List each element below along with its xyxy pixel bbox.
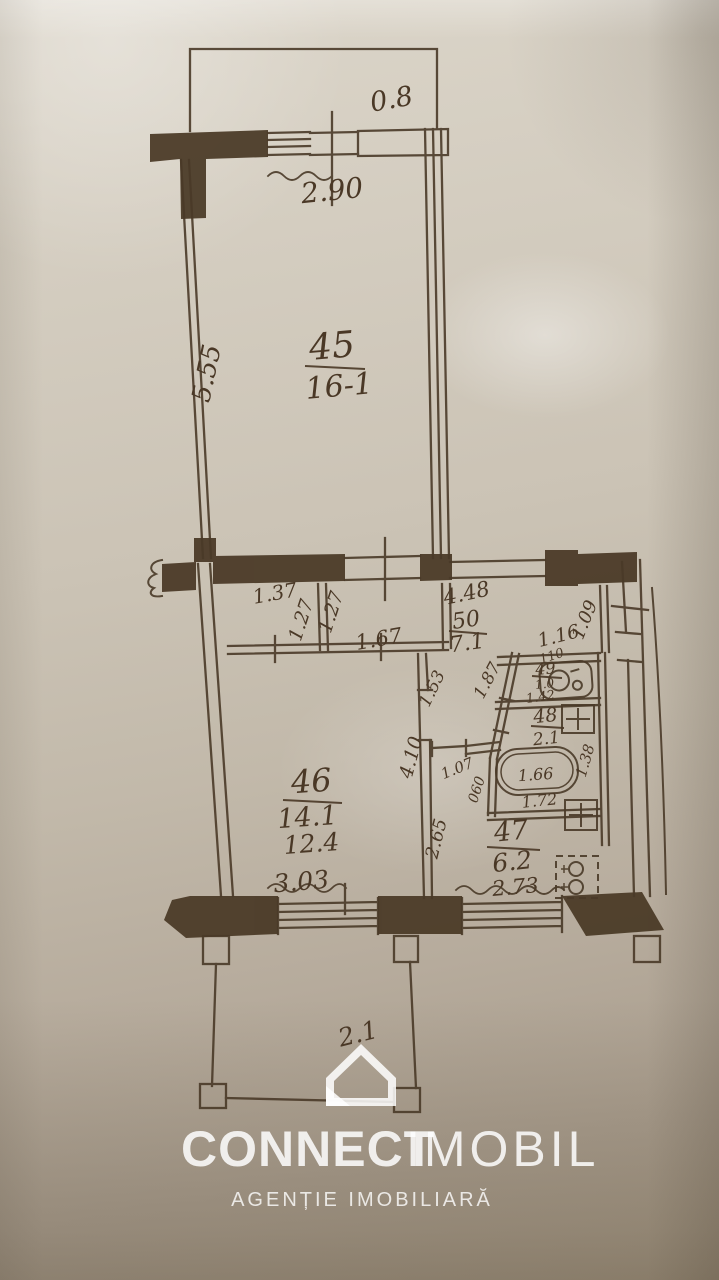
wall-bottom-mid — [378, 896, 462, 934]
balcony-post-tr — [394, 936, 418, 962]
room48-area: 2.1 — [531, 728, 561, 751]
balcony-post-br — [394, 1088, 420, 1112]
brand-light-text: IMOBIL — [406, 1121, 599, 1177]
dim-bath-length: 1.72 — [521, 789, 558, 812]
room46-number: 46 — [289, 761, 333, 802]
wall-left-cross-stub — [194, 538, 216, 562]
balcony-post-bl — [200, 1084, 226, 1108]
watermark: CONNECT IMOBIL AGENȚIE IMOBILIARĂ — [181, 1044, 599, 1211]
stove-icon — [556, 856, 598, 898]
wall-top-left-tee — [150, 130, 268, 219]
room48-number: 48 — [531, 704, 558, 729]
wall-room45-right — [425, 129, 449, 558]
floor-plan-photo: 0.8 2.90 45 16-1 5.55 1.37 1.27 1.27 1.6… — [0, 0, 719, 1280]
window-top-hatch — [268, 132, 310, 155]
room47-number: 47 — [491, 814, 530, 849]
wall-left-stub — [162, 562, 196, 592]
dim-door-width: 1.07 — [438, 754, 476, 783]
door-balcony-top — [310, 132, 358, 155]
dim-window-room46: 3.03 — [272, 865, 330, 899]
dim-balcony-bottom: 2.1 — [334, 1015, 381, 1053]
wall-main-right-inner — [622, 562, 634, 896]
dim-closet-depth-1: 1.27 — [284, 596, 318, 644]
dim-niche-depth: 1.53 — [415, 667, 450, 710]
balcony-bottom-outline — [212, 962, 416, 1102]
dim-room46-length: 4.10 — [395, 734, 427, 782]
balcony-post-tl — [203, 936, 229, 964]
dim-window-kitchen: 2.73 — [490, 873, 540, 901]
door-main-top — [345, 556, 420, 580]
brand-tagline-text: AGENȚIE IMOBILIARĂ — [231, 1188, 493, 1211]
wall-left-curl — [148, 560, 162, 596]
dim-door-width-2: 060 — [465, 775, 489, 805]
wall-main-top-c — [578, 552, 637, 584]
dim-hall-length: 4.48 — [440, 577, 492, 610]
wall-right-curve — [652, 588, 666, 894]
wall-bottom-left — [164, 896, 278, 938]
wall-niche — [600, 586, 609, 652]
wall-main-top-b — [420, 554, 452, 581]
dim-window-top: 2.90 — [298, 171, 364, 210]
dim-bath-width: 1.38 — [572, 742, 599, 779]
room46-area-alt: 12.4 — [283, 827, 341, 860]
brand-bold-text: CONNECT — [181, 1121, 435, 1177]
wall-corridor-top — [450, 560, 545, 578]
wall-bottom-right — [562, 892, 664, 936]
wall-junction-block — [545, 550, 578, 586]
floor-plan-drawing: 0.8 2.90 45 16-1 5.55 1.37 1.27 1.27 1.6… — [0, 0, 719, 1280]
dim-tub-length: 1.66 — [517, 764, 554, 785]
room45-number: 45 — [306, 324, 356, 369]
radiator-icon-top — [562, 705, 594, 733]
post-bottom-right-corner — [634, 936, 660, 962]
room50-area: 7.1 — [448, 629, 486, 659]
window-room46-hatch — [278, 898, 378, 934]
wall-main-left — [198, 564, 233, 896]
window-kitchen-hatch — [462, 896, 562, 934]
dim-balcony-top: 0.8 — [368, 81, 416, 119]
room45-area: 16-1 — [304, 366, 374, 407]
radiator-icon-bottom — [565, 800, 597, 830]
wall-closet-bottom — [228, 642, 448, 654]
dim-hall2-length: 2.65 — [421, 817, 451, 862]
